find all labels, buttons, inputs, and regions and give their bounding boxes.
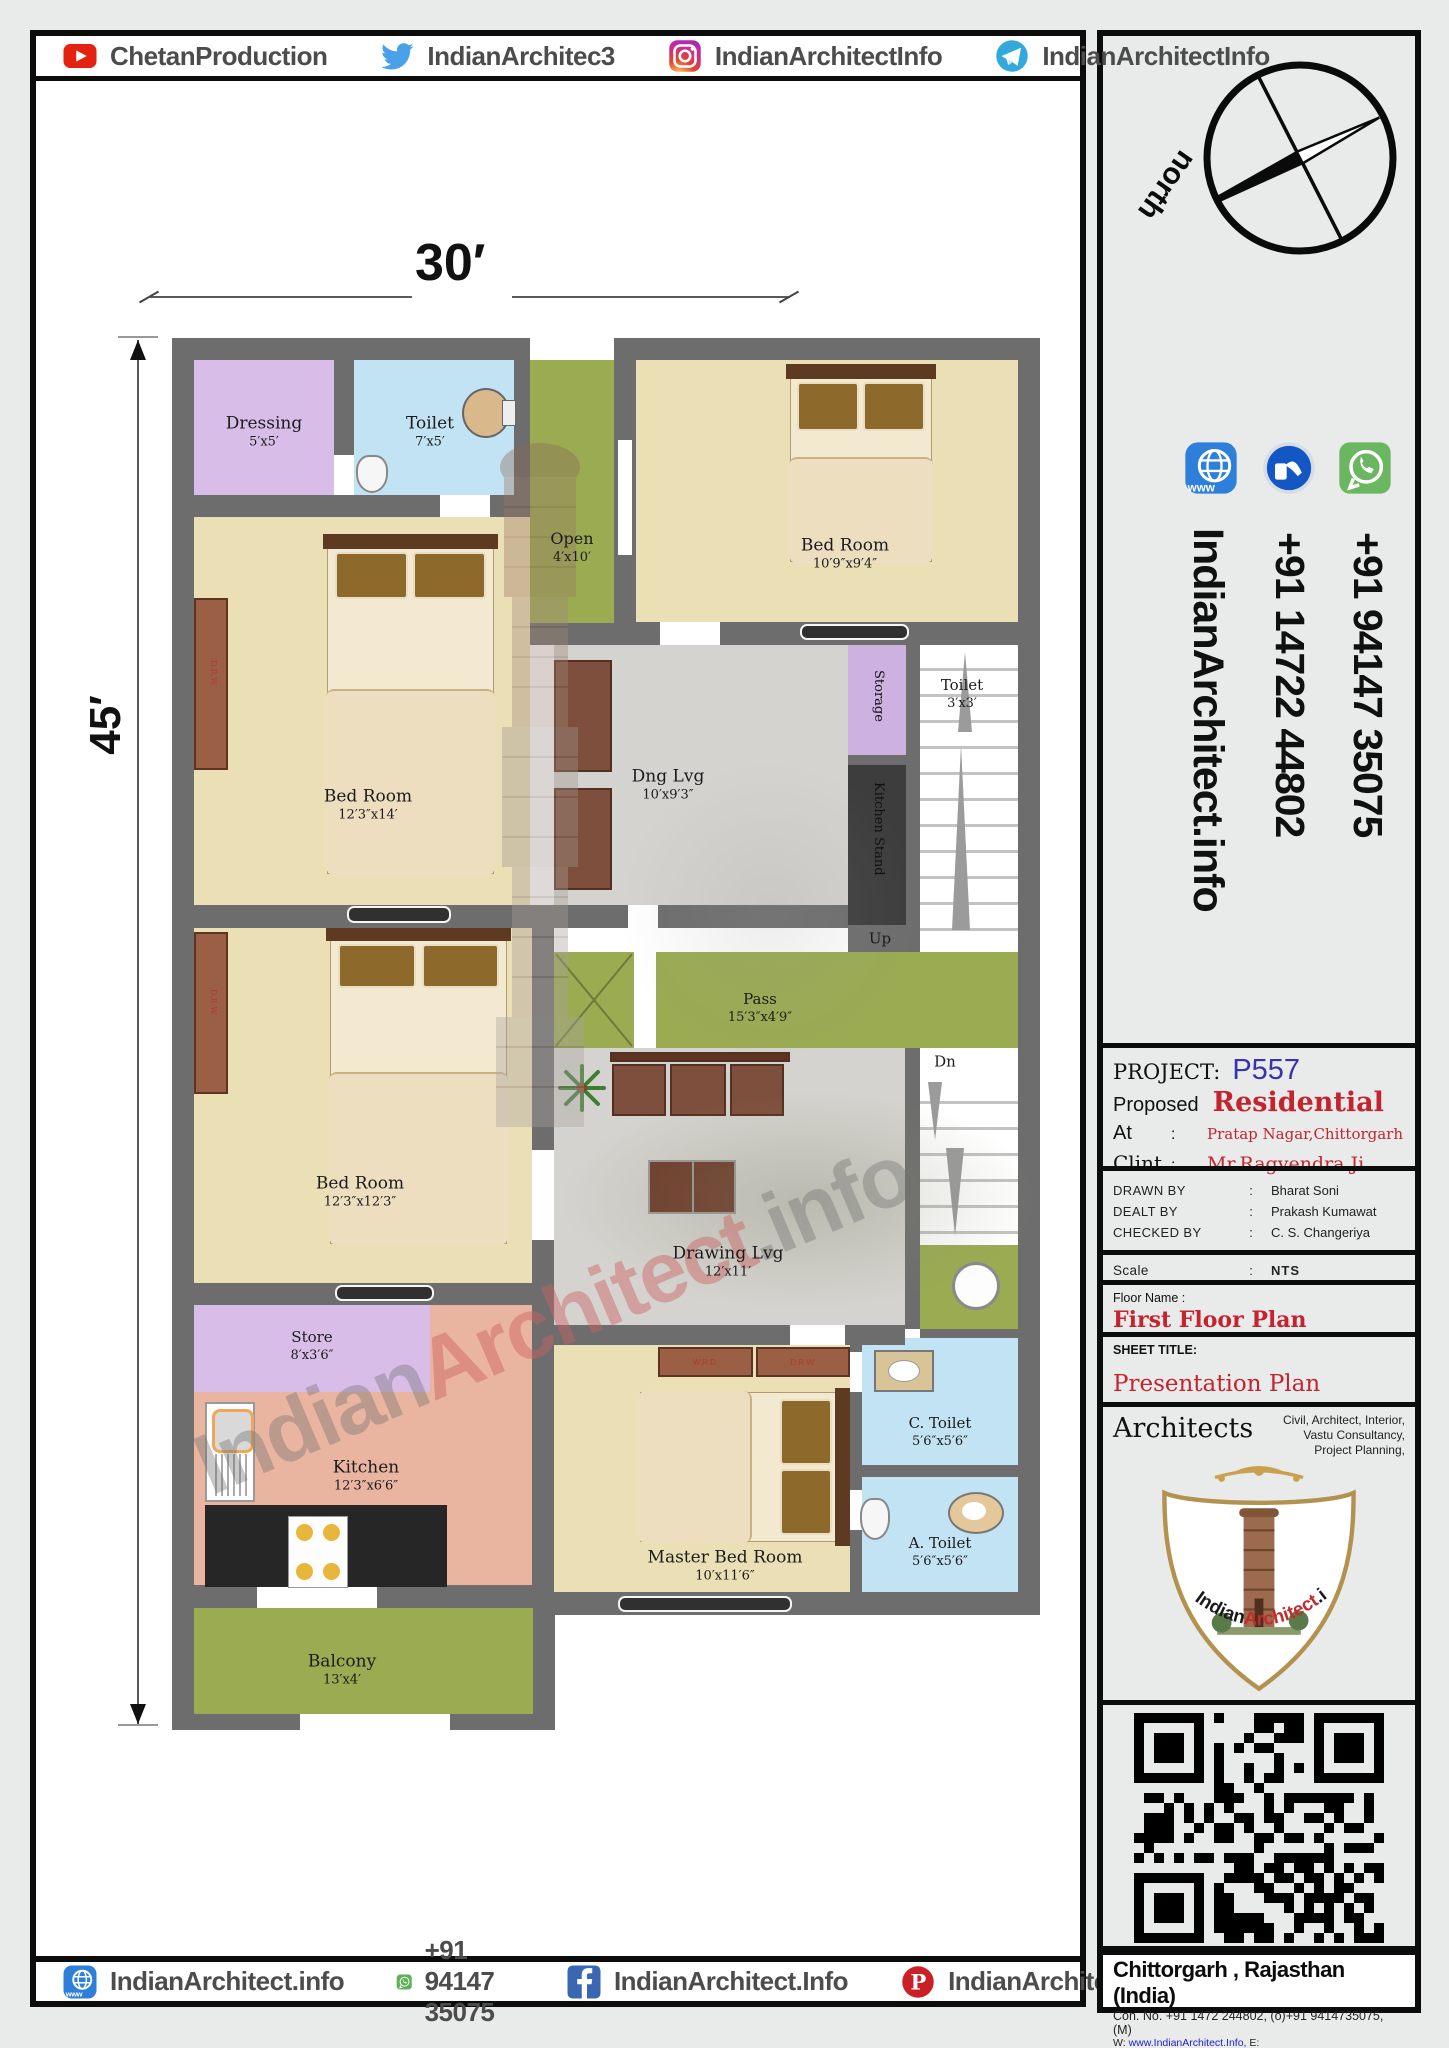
dim-cap: [118, 1724, 158, 1726]
floor-name-value: First Floor Plan: [1113, 1307, 1405, 1333]
floor-name-label: Floor Name :: [1113, 1291, 1405, 1305]
at-label: At: [1113, 1122, 1171, 1145]
project-label: PROJECT:: [1113, 1060, 1220, 1084]
sink: [212, 1409, 254, 1453]
wardrobe-label: D.R.W.: [758, 1358, 848, 1367]
room-label-kitchen-stand: Kitchen Stand: [871, 782, 886, 876]
wardrobe-label: D.R.W.: [209, 660, 218, 687]
instagram-icon: [667, 38, 703, 74]
wall: [532, 928, 554, 1608]
pillow: [422, 944, 500, 988]
team-name: Bharat Soni: [1271, 1183, 1339, 1198]
service-line: Civil, Architect, Interior,: [1283, 1413, 1405, 1428]
presentation-sheet: ChetanProduction IndianArchitec3 IndianA…: [0, 0, 1449, 2048]
window: [335, 1285, 434, 1301]
squat-toilet: [874, 1350, 934, 1392]
youtube-icon: [62, 38, 98, 74]
sidebar-phone-mobile-vertical[interactable]: +91 94147 35075: [1344, 532, 1391, 837]
team-row: DRAWN BY:Bharat Soni: [1113, 1183, 1405, 1198]
door-opening: [850, 1352, 862, 1392]
headboard: [786, 364, 936, 379]
pillow: [863, 382, 926, 431]
room-label-storage: Storage: [871, 670, 886, 722]
colon: :: [1231, 1263, 1271, 1278]
wardrobe-label: W.R.D.: [660, 1358, 751, 1367]
pillow: [780, 1469, 832, 1535]
service-line: Project Planning,: [1283, 1443, 1405, 1458]
architect-logo: IndianArchitect.info: [1149, 1462, 1369, 1702]
stove: [288, 1516, 348, 1588]
wc-pan: [962, 1502, 986, 1520]
social-label: +91 94147 35075: [425, 1935, 514, 2028]
pillow: [413, 552, 486, 599]
team-role: DRAWN BY: [1113, 1183, 1231, 1198]
fax-phone-icon: [1261, 440, 1317, 496]
wardrobe: D.R.W.: [756, 1347, 850, 1377]
sheet-title-value: Presentation Plan: [1113, 1371, 1405, 1397]
room-open: [530, 360, 614, 623]
dim-line-45: [137, 340, 139, 1726]
room-label-bedroom-tr: Bed Room10′9″x9′4″: [801, 535, 889, 574]
burner: [296, 1524, 313, 1541]
plant: [556, 1062, 608, 1114]
wall: [514, 360, 530, 517]
wash-basin: [356, 455, 388, 493]
blanket: [326, 689, 495, 876]
social-label: ChetanProduction: [110, 41, 327, 72]
bed: [790, 372, 932, 562]
room-label-c-toilet: C. Toilet5′6″x5′6″: [909, 1414, 972, 1450]
social-youtube[interactable]: ChetanProduction: [62, 38, 327, 74]
pillow: [797, 382, 860, 431]
room-label-master: Master Bed Room10′x11′6″: [648, 1547, 803, 1586]
room-label-open: Open4′x10′: [550, 529, 593, 567]
website-icon: www: [62, 1964, 98, 2000]
plan-width-dimension: 30′: [415, 233, 485, 293]
bottom-social-bar: www IndianArchitect.info +91 94147 35075…: [36, 1956, 1080, 2001]
qr-section: [1103, 1700, 1415, 1949]
window-slot: [618, 440, 632, 555]
wardrobe: D.R.W.: [194, 598, 228, 770]
team-name: Prakash Kumawat: [1271, 1204, 1377, 1219]
wall: [172, 338, 530, 360]
wall: [194, 905, 848, 928]
web-label: W:: [1113, 2037, 1126, 2048]
room-label-drawing: Drawing Lvg12′x11′: [673, 1243, 784, 1282]
social-whatsapp[interactable]: +91 94147 35075: [396, 1935, 514, 2028]
pillow: [335, 552, 408, 599]
room-court: [554, 952, 634, 1048]
room-label-dng: Dng Lvg10′x9′3″: [632, 766, 705, 805]
room-label-kitchen: Kitchen12′3″x6′6″: [333, 1457, 399, 1496]
blanket: [329, 1072, 508, 1246]
service-line: Vastu Consultancy,: [1283, 1428, 1405, 1443]
scale-label: Scale: [1113, 1263, 1231, 1278]
stair-arrow-down-small: [928, 1082, 942, 1140]
room-label-toilet-top: Toilet7′x5′: [406, 413, 454, 452]
proposed-label: Proposed: [1113, 1094, 1199, 1117]
stair-arrow-up: [952, 745, 970, 930]
social-label: IndianArchitect.info: [110, 1966, 344, 1997]
pillow: [338, 944, 416, 988]
social-label: IndianArchitect.Info: [614, 1966, 848, 1997]
wc-fixture: [948, 1492, 1004, 1534]
wash-basin-round: [952, 1262, 1000, 1310]
room-pass: [656, 952, 1018, 1048]
colon: :: [1171, 1126, 1207, 1144]
door-opening: [334, 455, 354, 495]
burner: [323, 1563, 340, 1580]
bed-master: [640, 1392, 842, 1542]
headboard: [323, 534, 498, 549]
team-role: DEALT BY: [1113, 1204, 1231, 1219]
kitchen-sink-unit: [205, 1402, 255, 1502]
wall: [530, 623, 614, 645]
project-type: Residential: [1213, 1087, 1384, 1118]
court-cross: [554, 952, 634, 1048]
sofa-seat: [612, 1064, 666, 1116]
social-website[interactable]: www IndianArchitect.info: [62, 1964, 344, 2000]
room-label-bedroom-left: Bed Room12′3″x14′: [324, 786, 412, 825]
drainboard: [211, 1454, 249, 1496]
colon: :: [1231, 1225, 1271, 1240]
wall: [848, 755, 906, 765]
north-compass: [1192, 50, 1408, 266]
wardrobe: D.R.W.: [194, 932, 228, 1094]
address-website[interactable]: www.IndianArchitect.Info,: [1129, 2037, 1247, 2048]
whatsapp-icon: [396, 1964, 412, 2000]
social-twitter[interactable]: IndianArchitec3: [379, 38, 615, 74]
scale-section: Scale:NTS: [1103, 1250, 1415, 1280]
window: [618, 1596, 792, 1612]
colon: :: [1231, 1183, 1271, 1198]
burner: [323, 1524, 340, 1541]
coffee-table: [648, 1160, 736, 1214]
address-box: Chittorgarh , Rajasthan (India) Con. No.…: [1097, 1949, 1421, 2013]
svg-text:www: www: [1187, 481, 1216, 494]
sidebar-website-vertical[interactable]: IndianArchitect.info: [1183, 528, 1232, 912]
svg-text:P: P: [911, 1969, 927, 1994]
door-opening: [628, 905, 658, 928]
project-number: P557: [1232, 1054, 1300, 1087]
headboard: [835, 1388, 850, 1546]
dim-arrow-up: [130, 340, 146, 360]
colon: :: [1231, 1204, 1271, 1219]
door-opening: [257, 1585, 377, 1608]
address-contact: Con. No. +91 1472 244802, (o)+91 9414735…: [1113, 2009, 1405, 2037]
social-label: IndianArchitec3: [427, 41, 615, 72]
wall: [554, 1325, 905, 1345]
stairs-up-label: Up: [869, 929, 891, 949]
dim-line-30-right: [512, 296, 790, 298]
whatsapp-call-icon: [1337, 440, 1393, 496]
telegram-icon: [994, 38, 1030, 74]
table-divider: [692, 1162, 694, 1212]
wall: [533, 1592, 555, 1730]
team-section: DRAWN BY:Bharat Soni DEALT BY:Prakash Ku…: [1103, 1166, 1415, 1250]
team-role: CHECKED BY: [1113, 1225, 1231, 1240]
balcony-opening: [300, 1714, 450, 1730]
social-instagram[interactable]: IndianArchitectInfo: [667, 38, 942, 74]
room-label-dressing: Dressing5′x5′: [226, 413, 303, 452]
team-row: DEALT BY:Prakash Kumawat: [1113, 1204, 1405, 1219]
scale-value: NTS: [1271, 1263, 1300, 1278]
wall: [920, 1329, 1018, 1338]
sheet-title-section: SHEET TITLE: Presentation Plan: [1103, 1332, 1415, 1402]
cabinet: [554, 660, 612, 772]
social-label: IndianArchitectInfo: [715, 41, 942, 72]
wall: [614, 338, 1040, 360]
room-label-bedroom-ll: Bed Room12′3″x12′3″: [316, 1173, 404, 1212]
wall: [172, 338, 194, 1730]
wash-basin: [860, 1498, 890, 1540]
room-label-pass: Pass15′3″x4′9″: [728, 990, 792, 1026]
room-label-toilet-small: Toilet3′x3′: [941, 676, 983, 712]
twitter-icon: [379, 38, 415, 74]
address-city: Chittorgarh , Rajasthan (India): [1113, 1957, 1405, 2009]
sidebar-phone-office-vertical[interactable]: +91 14722 44802: [1266, 532, 1313, 837]
dim-arrow-down: [130, 1704, 146, 1724]
cabinet: [554, 788, 612, 890]
door-opening: [440, 495, 490, 517]
dim-cap: [118, 336, 158, 338]
door-opening: [660, 622, 720, 645]
sofa-seat: [730, 1064, 784, 1116]
wall: [906, 645, 920, 948]
architects-section: Architects Civil, Architect, Interior, V…: [1103, 1402, 1415, 1700]
room-label-store: Store8′x3′6″: [291, 1328, 334, 1364]
team-name: C. S. Changeriya: [1271, 1225, 1370, 1240]
sheet-title-label: SHEET TITLE:: [1113, 1343, 1405, 1357]
squat-pan: [888, 1360, 920, 1382]
project-location: Pratap Nagar,Chittorgarh: [1207, 1125, 1403, 1143]
project-section: PROJECT: P557 Proposed Residential At : …: [1103, 1043, 1415, 1166]
plan-height-dimension: 45′: [81, 695, 131, 755]
dim-line-30-left: [150, 296, 412, 298]
room-label-balcony: Balcony13′x4′: [308, 1651, 376, 1690]
stair-arrow-down: [946, 1148, 964, 1236]
svg-text:www: www: [65, 1989, 83, 1998]
team-row: CHECKED BY:C. S. Changeriya: [1113, 1225, 1405, 1240]
burner: [296, 1563, 313, 1580]
stairs-down-label: Dn: [934, 1052, 956, 1072]
wall: [862, 1465, 1018, 1477]
wardrobe: W.R.D.: [658, 1347, 753, 1377]
window: [347, 906, 451, 923]
pillow: [780, 1399, 832, 1465]
wall: [1018, 338, 1040, 1615]
top-social-bar: ChetanProduction IndianArchitec3 IndianA…: [36, 36, 1080, 81]
architects-title: Architects: [1113, 1413, 1253, 1458]
floor-name-section: Floor Name : First Floor Plan: [1103, 1280, 1415, 1332]
facebook-icon: [566, 1964, 602, 2000]
email-label: E:: [1249, 2037, 1259, 2048]
social-facebook[interactable]: IndianArchitect.Info: [566, 1964, 848, 2000]
wall: [905, 1048, 920, 1329]
wc-tank: [502, 400, 516, 426]
qr-code: [1134, 1713, 1384, 1948]
sofa-back: [610, 1052, 790, 1062]
sofa-seat: [670, 1064, 726, 1116]
headboard: [326, 926, 511, 941]
wardrobe-label: D.R.W.: [209, 989, 218, 1016]
door-opening: [532, 1150, 554, 1240]
door-opening: [790, 1325, 845, 1345]
room-label-a-toilet: A. Toilet5′6″x5′6″: [909, 1534, 972, 1570]
blanket: [638, 1391, 752, 1543]
website-icon: www: [1183, 440, 1239, 496]
pinterest-icon: P: [900, 1964, 936, 2000]
window: [800, 624, 909, 640]
